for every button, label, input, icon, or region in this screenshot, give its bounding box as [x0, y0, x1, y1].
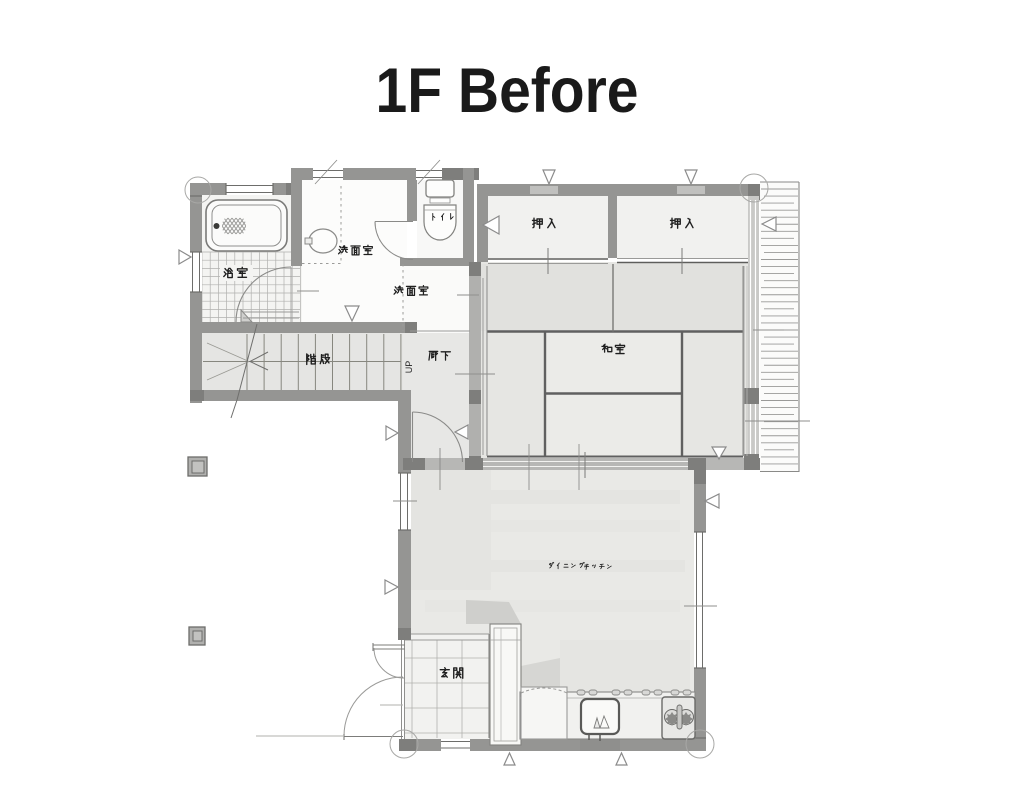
svg-text:UP: UP — [404, 361, 414, 374]
svg-text:1F Before: 1F Before — [376, 56, 639, 126]
